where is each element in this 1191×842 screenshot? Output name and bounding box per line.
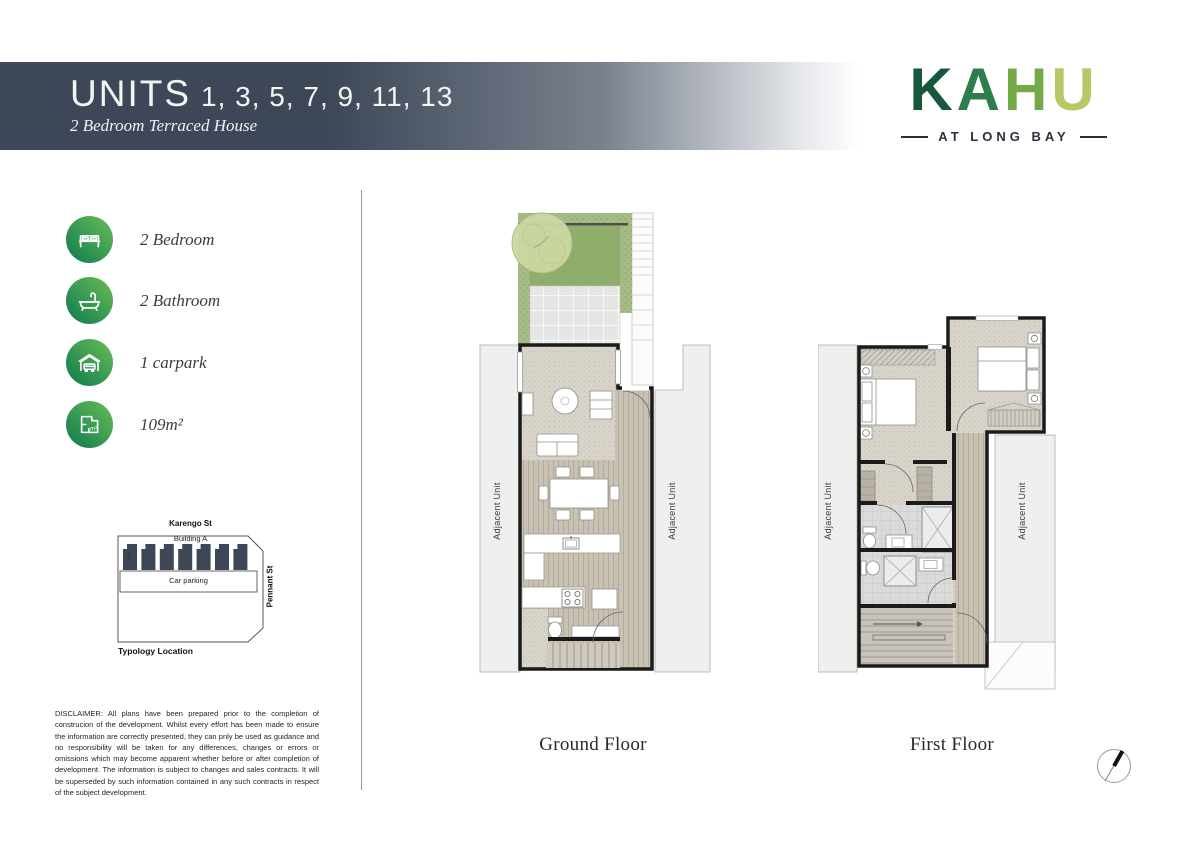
kahu-logo: KAHU AT LONG BAY <box>879 60 1129 144</box>
gf-bench <box>572 626 619 637</box>
logo-tagline: AT LONG BAY <box>879 129 1129 144</box>
gf-pantry <box>592 589 617 609</box>
logo-letter-u: U <box>1051 56 1098 123</box>
first-floor-caption: First Floor <box>852 734 1052 756</box>
typology-street-top-label: Karengo St <box>118 519 263 528</box>
kahu-wordmark: KAHU <box>879 60 1129 120</box>
typology-building-label: Building A <box>118 534 263 543</box>
header-banner: UNITS 1, 3, 5, 7, 9, 11, 13 2 Bedroom Te… <box>0 62 860 150</box>
ff-window-top <box>928 345 942 350</box>
area-icon: m² <box>66 401 113 448</box>
ff-stairs <box>860 608 953 666</box>
gf-entry-floor <box>522 609 548 667</box>
ff-bedroom-divider-wall <box>946 347 951 431</box>
gf-hedge-right <box>620 213 632 313</box>
amenity-label-area: 109m² <box>140 415 183 435</box>
gf-tree <box>512 213 572 273</box>
tagline-text: AT LONG BAY <box>938 129 1069 144</box>
amenity-carpark: 1 carpark <box>66 339 207 386</box>
gf-door-opening <box>622 386 649 391</box>
gf-toilet <box>548 617 562 638</box>
gf-side-deck <box>632 213 653 385</box>
units-numbers: 1, 3, 5, 7, 9, 11, 13 <box>201 81 453 113</box>
gf-window-left <box>518 352 523 392</box>
amenity-label-bedrooms: 2 Bedroom <box>140 230 214 250</box>
tagline-rule-right <box>1080 136 1107 138</box>
ff-adjacent-unit-label-right: Adjacent Unit <box>1017 461 1027 561</box>
ff-entry-canopy <box>985 642 1055 689</box>
typology-sim-label: Sim <box>126 548 134 566</box>
gf-wc-wall <box>548 637 620 641</box>
ff-bed2 <box>978 347 1026 391</box>
garage-icon <box>66 339 113 386</box>
gf-shelf <box>590 391 612 419</box>
gf-sofa <box>537 434 578 456</box>
gf-patio <box>530 286 620 345</box>
page-title: UNITS 1, 3, 5, 7, 9, 11, 13 <box>70 73 453 115</box>
ff-bedroom2-robe <box>988 410 1040 426</box>
disclaimer-text: DISCLAIMER: All plans have been prepared… <box>55 708 319 798</box>
logo-letter-k: K <box>909 56 956 123</box>
north-compass-icon <box>1094 747 1134 787</box>
bed-icon <box>66 216 113 263</box>
gf-adjacent-unit-label-left: Adjacent Unit <box>492 461 502 561</box>
logo-letter-h: H <box>1004 56 1051 123</box>
ff-bedroom2-window <box>976 316 1018 321</box>
gf-window-bay <box>616 350 621 384</box>
amenity-label-bathrooms: 2 Bathroom <box>140 291 220 311</box>
ff-shower2 <box>884 556 916 586</box>
logo-letter-a: A <box>957 56 1004 123</box>
ground-floor-caption: Ground Floor <box>493 734 693 756</box>
brochure-page: UNITS 1, 3, 5, 7, 9, 11, 13 2 Bedroom Te… <box>0 0 1191 842</box>
gf-fridge <box>524 553 544 580</box>
gf-adjacent-unit-label-right: Adjacent Unit <box>667 461 677 561</box>
amenity-bedrooms: 2 Bedroom <box>66 216 214 263</box>
gf-stairs <box>546 643 620 668</box>
typology-car-parking-label: Car parking <box>120 576 257 585</box>
units-title: UNITS <box>70 73 191 115</box>
ff-adjacent-unit-label-left: Adjacent Unit <box>823 461 833 561</box>
bathtub-icon <box>66 277 113 324</box>
ff-bedroom1-robe <box>861 350 935 365</box>
amenities-list: 2 Bedroom 2 Bathroom <box>66 216 326 466</box>
ff-shower1 <box>922 507 953 552</box>
gf-adjacent-panel-right <box>655 345 710 672</box>
tagline-rule-left <box>901 136 928 138</box>
first-floor-plan <box>818 205 1068 705</box>
page-subtitle: 2 Bedroom Terraced House <box>70 116 453 136</box>
typology-street-right-label: Pennant St <box>266 562 275 612</box>
amenity-bathrooms: 2 Bathroom <box>66 277 220 324</box>
gf-stove <box>562 589 583 607</box>
vertical-divider <box>361 190 362 790</box>
typology-location-diagram: Karengo St Building A Sim Car parking Pe… <box>110 518 290 666</box>
ff-corridor-timber <box>955 433 987 666</box>
amenity-label-carpark: 1 carpark <box>140 353 207 373</box>
ground-floor-plan <box>468 205 718 705</box>
typology-caption: Typology Location <box>118 646 193 656</box>
amenity-area: m² 109m² <box>66 401 183 448</box>
svg-text:m²: m² <box>90 427 97 433</box>
gf-tv-unit <box>522 393 533 415</box>
gf-kitchen-island <box>524 534 620 553</box>
gf-round-table <box>552 388 578 414</box>
